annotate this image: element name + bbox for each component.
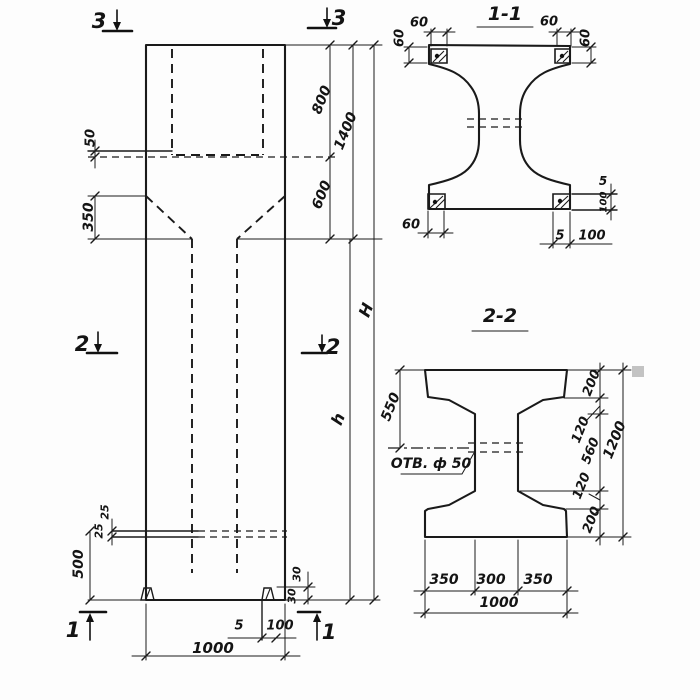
section-marker-bars [80,28,336,612]
section-1-1-dim-lines [404,29,612,248]
section-1-1-view [404,27,617,248]
anchor-dot-bottomleft [433,200,437,204]
dim-100-bottom: 100 [578,229,605,244]
dim-25-upper: 25 [99,504,112,520]
socket-hidden-lines [172,49,263,155]
section-2-2-outline [425,370,567,537]
plate-projection-lines [572,194,617,210]
dim-120-bottom: 120 [570,471,594,502]
dim-300: 300 [476,572,505,588]
scan-artifact [632,366,644,377]
dim-60-topright: 60 [540,15,558,30]
dim-60-left-vert: 60 [393,29,408,47]
embed-plate-hatch [430,51,570,208]
dim-1000-section: 1000 [480,595,519,611]
dim-100-foot: 100 [266,619,293,634]
dim-1200: 1200 [600,419,630,461]
dim-50-neck: 50 [84,129,99,147]
tie-bars [112,531,198,537]
anchor-dot-topright [560,54,564,58]
dim-5-right: 5 [599,174,607,188]
dim-60-bottomleft: 60 [402,218,420,233]
foot-chamfer-hatch [146,589,270,599]
dim-1400: 1400 [331,110,361,152]
drawing-sheet: 3322115035050025258001400600Hh1000510030… [0,0,700,700]
dim-60-right-vert: 60 [579,29,594,47]
dim-h: h [327,410,349,428]
labels-layer: 3322115035050025258001400600Hh1000510030… [66,3,630,657]
tie-bars-hidden [198,531,287,537]
dim-100-right: 100 [599,192,610,213]
dim-5-foot: 5 [234,619,243,634]
anchor-dot-topleft [435,54,439,58]
section-marker-1-right: 1 [322,620,337,644]
hole-hidden-lines-1-1 [467,119,525,127]
elevation-view [80,8,382,660]
anchor-dot-bottomright [558,199,562,203]
dim-500-foot: 500 [71,549,87,578]
section-marker-3-left: 3 [92,9,107,33]
web-hidden-lines [192,239,237,573]
taper-hidden-lines [146,196,285,239]
dim-800: 800 [309,83,335,116]
dim-25-lower: 25 [93,523,106,539]
dim-350-taper: 350 [81,202,97,231]
section-marker-2-left: 2 [75,332,90,356]
dim-1000-elevation: 1000 [192,639,234,657]
section-marker-3-right: 3 [332,6,347,30]
section-1-1-title: 1-1 [488,3,522,25]
dim-30-lower: 30 [286,588,299,604]
section-marker-2-right: 2 [326,335,341,359]
dim-30-upper: 30 [291,566,304,582]
elevation-outline [146,45,285,600]
section-marker-stems [90,8,327,640]
dim-350-left: 350 [429,572,458,588]
section-marker-1-left: 1 [66,618,81,642]
section-2-2-title: 2-2 [483,305,517,327]
hole-callout: ОТВ. ф 50 [391,456,472,472]
section-1-1-outline [429,45,570,209]
dim-60-topleft: 60 [410,16,428,31]
dim-5-bottom: 5 [555,229,564,244]
technical-drawing: 3322115035050025258001400600Hh1000510030… [0,0,700,700]
section-2-2-view [388,331,644,618]
dim-350-right: 350 [523,572,552,588]
dim-600: 600 [309,178,335,211]
section-1-1-ticks [405,28,615,248]
